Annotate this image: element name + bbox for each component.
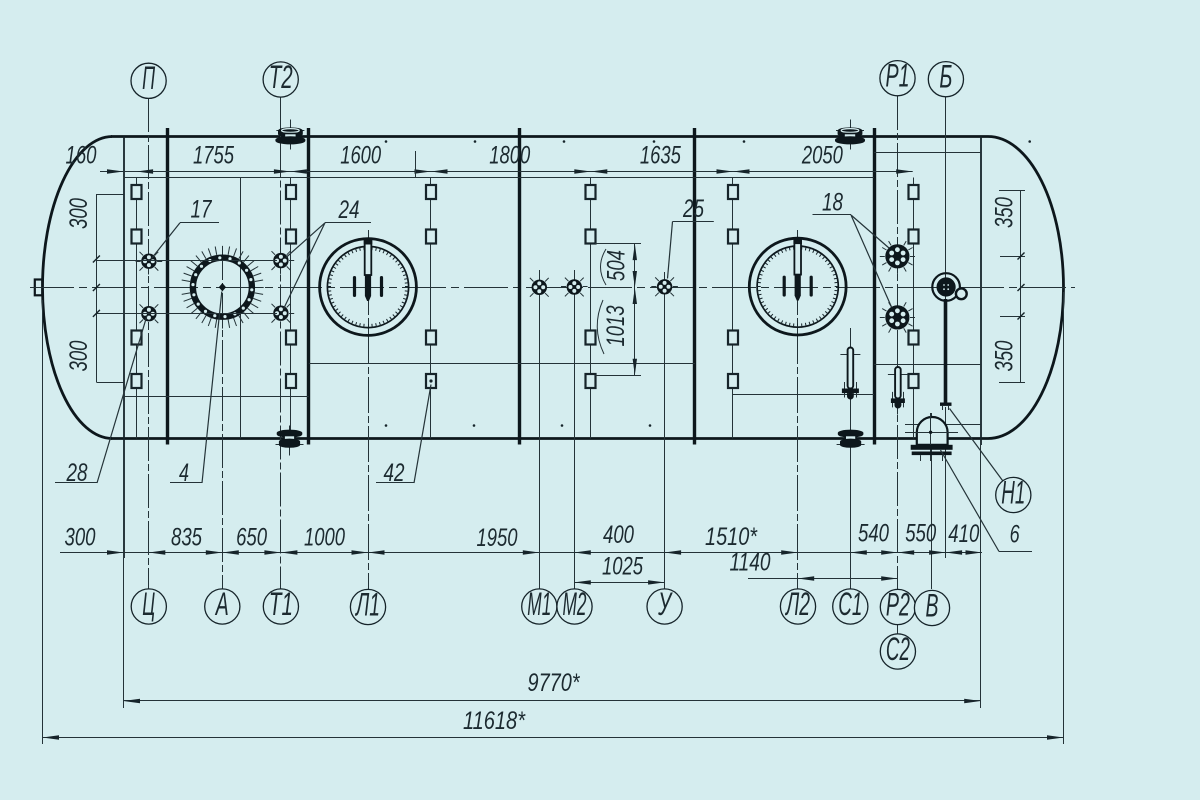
svg-text:Л1: Л1 <box>355 586 380 622</box>
svg-text:У: У <box>657 586 673 622</box>
svg-text:1635: 1635 <box>640 142 682 170</box>
svg-text:24: 24 <box>338 196 360 224</box>
svg-text:С2: С2 <box>886 631 910 667</box>
svg-text:1013: 1013 <box>602 306 630 347</box>
svg-text:Н1: Н1 <box>1001 474 1025 510</box>
svg-text:504: 504 <box>603 250 631 281</box>
svg-text:650: 650 <box>236 524 267 552</box>
svg-text:М1: М1 <box>527 586 551 622</box>
svg-text:18: 18 <box>822 189 843 217</box>
svg-text:Л2: Л2 <box>785 586 810 622</box>
svg-text:350: 350 <box>991 197 1019 228</box>
svg-text:1950: 1950 <box>477 524 518 552</box>
svg-text:28: 28 <box>66 459 88 487</box>
svg-text:550: 550 <box>905 520 936 548</box>
svg-text:17: 17 <box>191 196 213 224</box>
svg-text:2050: 2050 <box>801 142 843 170</box>
svg-text:42: 42 <box>384 459 405 487</box>
svg-text:350: 350 <box>991 341 1019 372</box>
svg-text:Т1: Т1 <box>269 586 293 622</box>
svg-text:25: 25 <box>682 195 704 223</box>
svg-text:1600: 1600 <box>340 142 381 170</box>
svg-text:4: 4 <box>179 459 189 487</box>
svg-text:160: 160 <box>66 142 97 170</box>
svg-text:А: А <box>215 586 229 622</box>
svg-text:6: 6 <box>1010 521 1020 549</box>
svg-text:300: 300 <box>65 198 93 229</box>
svg-text:1510*: 1510* <box>705 523 758 551</box>
svg-text:1800: 1800 <box>489 142 530 170</box>
svg-text:Б: Б <box>939 59 952 95</box>
svg-text:11618*: 11618* <box>463 707 526 735</box>
svg-text:1140: 1140 <box>730 549 771 577</box>
svg-text:Т2: Т2 <box>269 59 293 95</box>
svg-text:400: 400 <box>603 521 634 549</box>
svg-text:540: 540 <box>858 520 889 548</box>
svg-text:В: В <box>926 587 939 623</box>
svg-text:835: 835 <box>171 524 203 552</box>
svg-text:М2: М2 <box>563 586 587 622</box>
svg-text:9770*: 9770* <box>528 669 581 697</box>
svg-text:Ц: Ц <box>142 586 155 622</box>
svg-text:1755: 1755 <box>193 142 235 170</box>
svg-text:1000: 1000 <box>304 524 345 552</box>
svg-text:300: 300 <box>65 524 96 552</box>
svg-text:С1: С1 <box>838 586 862 622</box>
svg-text:Р2: Р2 <box>886 586 910 622</box>
svg-text:410: 410 <box>948 520 979 548</box>
svg-text:П: П <box>142 60 155 96</box>
svg-text:1025: 1025 <box>602 553 644 581</box>
svg-text:Р1: Р1 <box>886 58 910 94</box>
svg-text:300: 300 <box>65 341 93 372</box>
